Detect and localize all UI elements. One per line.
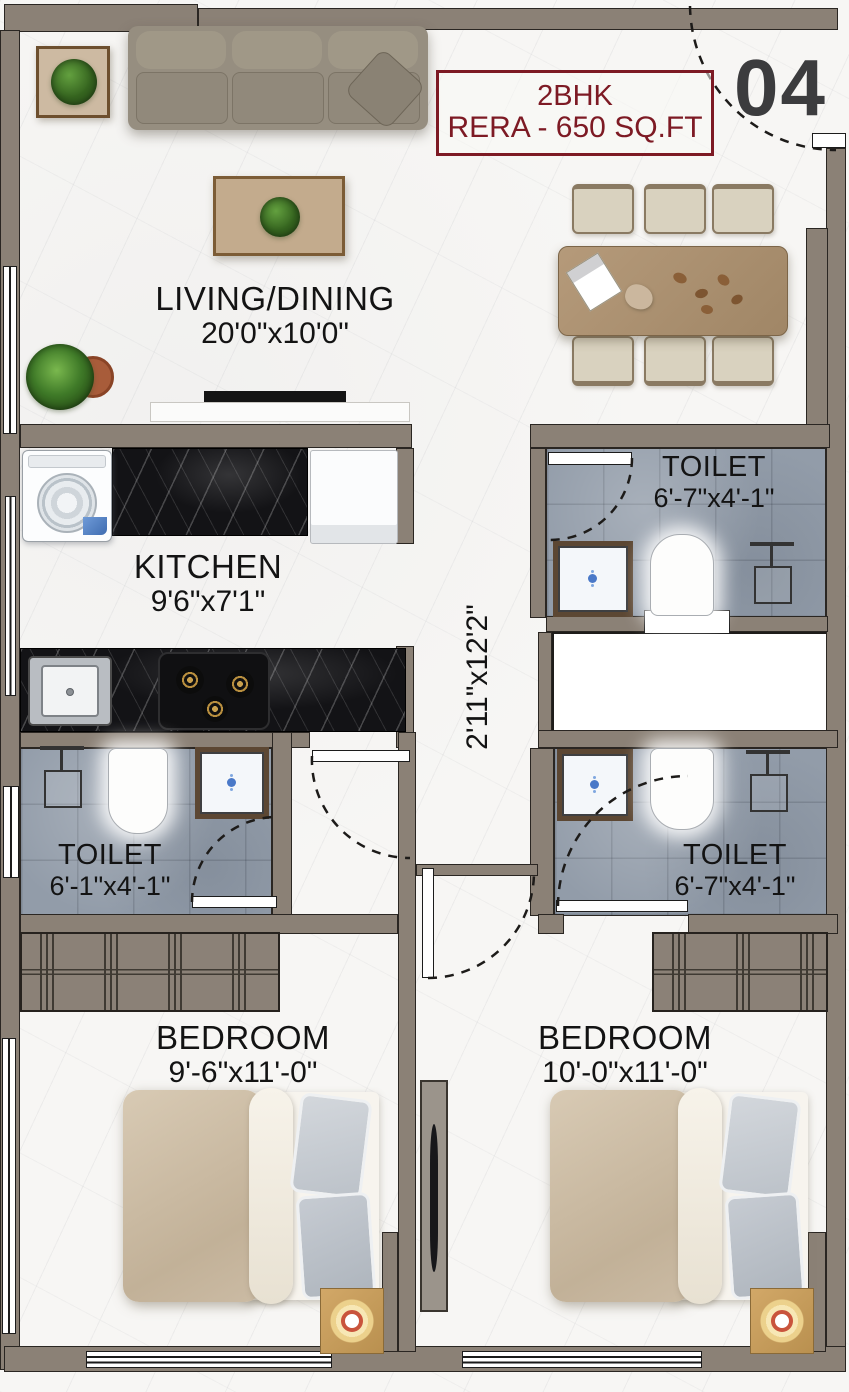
wall bbox=[398, 732, 416, 1352]
table-decor-petal bbox=[700, 304, 713, 315]
wall bbox=[382, 1232, 398, 1352]
wash-basin-icon bbox=[200, 752, 264, 814]
wall bbox=[538, 632, 552, 732]
sofa-seat-cushion bbox=[136, 72, 228, 124]
nightstand-icon bbox=[750, 1288, 814, 1354]
wc-icon bbox=[650, 534, 714, 616]
wall bbox=[538, 730, 838, 748]
toilet-top-right-label: TOILET 6'-7"x4'-1" bbox=[653, 452, 774, 514]
nightstand-icon bbox=[320, 1288, 384, 1354]
shower-icon bbox=[750, 542, 794, 604]
washer-accent bbox=[83, 517, 107, 535]
wash-basin-icon bbox=[562, 754, 628, 816]
refrigerator-icon bbox=[310, 450, 398, 544]
unit-number: 04 bbox=[734, 42, 827, 134]
washing-machine-icon bbox=[22, 450, 112, 542]
bed-icon bbox=[123, 1088, 383, 1306]
bed-sheet-fold bbox=[249, 1088, 293, 1304]
room-dims: 10'-0"x11'-0" bbox=[542, 1056, 708, 1089]
door-leaf bbox=[548, 452, 632, 465]
dining-chair-icon bbox=[712, 336, 774, 386]
window bbox=[3, 266, 17, 434]
bed-duvet bbox=[123, 1090, 261, 1302]
wall bbox=[538, 914, 564, 934]
wc-icon bbox=[108, 748, 168, 834]
floor-plan: LIVING/DINING 20'0"x10'0" KITCHEN 9'6"x7… bbox=[0, 0, 849, 1392]
dining-chair-icon bbox=[644, 184, 706, 234]
living-dining-label: LIVING/DINING 20'0"x10'0" bbox=[155, 281, 394, 350]
burner-icon bbox=[226, 670, 254, 698]
table-decor-petal bbox=[715, 272, 731, 288]
tv-screen bbox=[430, 1124, 438, 1272]
lamp-icon bbox=[328, 1297, 376, 1345]
potted-plant-icon bbox=[51, 59, 97, 105]
wall bbox=[530, 424, 830, 448]
door-leaf bbox=[312, 750, 410, 762]
stove-icon bbox=[158, 652, 270, 730]
burner-icon bbox=[202, 696, 228, 722]
passage-dims-label: 2'11"x12'2" bbox=[458, 597, 498, 757]
room-name: KITCHEN bbox=[134, 549, 282, 585]
dining-chair-icon bbox=[572, 336, 634, 386]
room-dims: 2'11"x12'2" bbox=[461, 604, 495, 750]
tv-unit-icon bbox=[420, 1080, 448, 1312]
sofa-back-cushion bbox=[136, 31, 226, 69]
wall bbox=[530, 748, 554, 916]
window bbox=[86, 1351, 332, 1368]
table-decor-flower bbox=[622, 281, 657, 313]
shower-icon bbox=[746, 750, 790, 812]
kitchen-label: KITCHEN 9'6"x7'1" bbox=[134, 549, 282, 618]
lamp-icon bbox=[758, 1297, 806, 1345]
wall bbox=[20, 424, 412, 448]
room-name: BEDROOM bbox=[538, 1020, 712, 1056]
sink-icon bbox=[28, 656, 112, 726]
sofa-icon bbox=[128, 26, 428, 130]
pillow-icon bbox=[295, 1192, 376, 1301]
bed-duvet bbox=[550, 1090, 690, 1302]
wc-icon bbox=[650, 748, 714, 830]
sofa-seat-cushion bbox=[232, 72, 324, 124]
door-leaf bbox=[422, 868, 434, 978]
door-leaf bbox=[556, 900, 688, 912]
table-decor-petal bbox=[672, 271, 689, 286]
window bbox=[5, 496, 16, 696]
room-name: TOILET bbox=[683, 840, 787, 872]
dining-chair-icon bbox=[644, 336, 706, 386]
wash-basin-icon bbox=[558, 546, 628, 612]
entrance-door-leaf bbox=[812, 133, 846, 148]
plan-title-box: 2BHK RERA - 650 SQ.FT bbox=[436, 70, 714, 156]
toilet-left-label: TOILET 6'-1"x4'-1" bbox=[49, 840, 170, 902]
floor-plant-icon bbox=[26, 344, 116, 412]
kitchen-counter-top bbox=[112, 448, 308, 536]
bed-sheet-fold bbox=[678, 1088, 722, 1304]
magazine-icon bbox=[566, 252, 623, 311]
wall bbox=[416, 864, 538, 876]
sofa-back-cushion bbox=[232, 31, 322, 69]
wall bbox=[396, 448, 414, 544]
room-dims: 6'-7"x4'-1" bbox=[653, 484, 774, 514]
wall bbox=[530, 448, 546, 618]
kitchen-pass-counter bbox=[150, 402, 410, 422]
wall bbox=[826, 148, 846, 1370]
sink-drain bbox=[66, 688, 74, 696]
burner-icon bbox=[176, 666, 204, 694]
bed-icon bbox=[550, 1088, 812, 1306]
pillow-icon bbox=[724, 1192, 805, 1301]
room-name: LIVING/DINING bbox=[155, 281, 394, 317]
potted-plant-icon bbox=[260, 197, 300, 237]
table-decor-petal bbox=[730, 293, 745, 307]
shower-icon bbox=[40, 746, 84, 808]
room-dims: 9'6"x7'1" bbox=[151, 585, 266, 618]
duct-shaft bbox=[552, 632, 838, 732]
side-table-icon bbox=[36, 46, 110, 118]
washer-control-panel bbox=[28, 455, 106, 468]
door-swing-arc bbox=[428, 872, 534, 978]
room-dims: 9'-6"x11'-0" bbox=[169, 1056, 318, 1089]
coffee-table-icon bbox=[213, 176, 345, 256]
room-dims: 6'-7"x4'-1" bbox=[674, 872, 795, 902]
room-name: TOILET bbox=[662, 452, 766, 484]
wall bbox=[20, 914, 398, 934]
dining-chair-icon bbox=[712, 184, 774, 234]
plan-type-label: 2BHK bbox=[537, 81, 613, 112]
window bbox=[2, 1038, 16, 1334]
room-dims: 6'-1"x4'-1" bbox=[49, 872, 170, 902]
door-leaf bbox=[192, 896, 277, 908]
wall bbox=[806, 228, 828, 432]
table-decor-petal bbox=[694, 287, 709, 299]
pillow-icon bbox=[289, 1092, 373, 1200]
window bbox=[462, 1351, 702, 1368]
room-name: TOILET bbox=[58, 840, 162, 872]
dining-chair-icon bbox=[572, 184, 634, 234]
room-name: BEDROOM bbox=[156, 1020, 330, 1056]
wall bbox=[688, 914, 838, 934]
plant-leaves bbox=[26, 344, 94, 410]
wardrobe-icon bbox=[20, 932, 280, 1012]
rera-area-label: RERA - 650 SQ.FT bbox=[447, 112, 702, 144]
room-dims: 20'0"x10'0" bbox=[201, 317, 349, 350]
bedroom-right-label: BEDROOM 10'-0"x11'-0" bbox=[538, 1020, 712, 1089]
dining-table-icon bbox=[558, 246, 788, 336]
pillow-icon bbox=[718, 1092, 802, 1200]
door-swing-arc bbox=[312, 756, 410, 858]
window bbox=[3, 786, 19, 878]
bedroom-left-label: BEDROOM 9'-6"x11'-0" bbox=[156, 1020, 330, 1089]
wardrobe-icon bbox=[652, 932, 828, 1012]
toilet-mid-right-label: TOILET 6'-7"x4'-1" bbox=[674, 840, 795, 902]
